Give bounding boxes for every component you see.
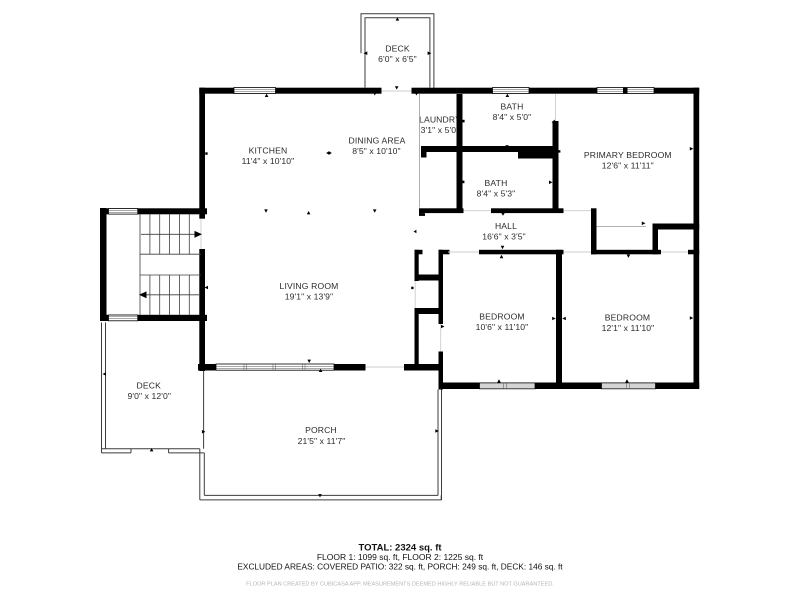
svg-text:9'0" x 12'0": 9'0" x 12'0": [128, 391, 172, 401]
svg-text:FLOOR PLAN CREATED BY CUBICASA: FLOOR PLAN CREATED BY CUBICASA APP. MEAS…: [246, 582, 554, 588]
svg-text:8'5" x 10'10": 8'5" x 10'10": [352, 146, 400, 156]
svg-text:8'4" x 5'3": 8'4" x 5'3": [477, 189, 516, 199]
svg-text:BEDROOM: BEDROOM: [605, 313, 650, 323]
svg-text:DECK: DECK: [385, 44, 410, 54]
svg-text:LAUNDRY: LAUNDRY: [419, 115, 461, 125]
svg-text:BATH: BATH: [501, 102, 524, 112]
svg-text:FLOOR 1: 1099 sq. ft, FLOOR 2:: FLOOR 1: 1099 sq. ft, FLOOR 2: 1225 sq. …: [317, 552, 484, 562]
svg-text:19'1" x 13'9": 19'1" x 13'9": [285, 292, 333, 302]
svg-text:12'6" x 11'11": 12'6" x 11'11": [602, 161, 654, 171]
svg-text:6'0" x 6'5": 6'0" x 6'5": [378, 54, 417, 64]
svg-text:8'4" x 5'0": 8'4" x 5'0": [493, 112, 532, 122]
svg-text:KITCHEN: KITCHEN: [249, 146, 288, 156]
svg-text:11'4" x 10'10": 11'4" x 10'10": [242, 156, 295, 166]
svg-text:BEDROOM: BEDROOM: [479, 312, 524, 322]
svg-text:DECK: DECK: [137, 381, 162, 391]
svg-text:PORCH: PORCH: [305, 425, 337, 435]
svg-text:3'1" x 5'0": 3'1" x 5'0": [421, 125, 460, 135]
svg-text:DINING AREA: DINING AREA: [348, 136, 405, 146]
svg-text:LIVING ROOM: LIVING ROOM: [280, 281, 339, 291]
svg-text:HALL: HALL: [495, 221, 517, 231]
svg-text:PRIMARY BEDROOM: PRIMARY BEDROOM: [584, 150, 672, 160]
svg-text:21'5" x 11'7": 21'5" x 11'7": [298, 436, 346, 446]
svg-text:10'6" x 11'10": 10'6" x 11'10": [476, 322, 529, 332]
svg-text:EXCLUDED AREAS: COVERED PATIO:: EXCLUDED AREAS: COVERED PATIO: 322 sq. f…: [237, 562, 563, 572]
svg-text:12'1" x 11'10": 12'1" x 11'10": [602, 323, 655, 333]
svg-text:BATH: BATH: [485, 178, 508, 188]
svg-text:16'6" x 3'5": 16'6" x 3'5": [482, 232, 526, 242]
